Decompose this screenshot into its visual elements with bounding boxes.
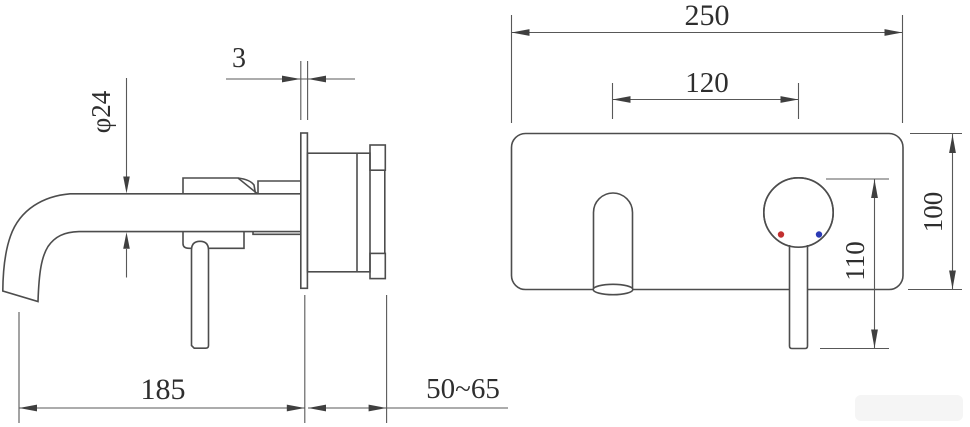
dim-label-handle-drop: 110 bbox=[840, 241, 870, 281]
technical-drawing-canvas: φ24 3 185 50~65 bbox=[0, 0, 970, 427]
dimension-spout-diameter: φ24 bbox=[86, 78, 130, 278]
wall-plate-side bbox=[301, 133, 308, 288]
arrowhead-left-icon bbox=[308, 76, 326, 83]
spout-outlet-ellipse bbox=[593, 284, 633, 294]
mounting-tab-top bbox=[370, 145, 385, 170]
dim-label-panel-thickness: 3 bbox=[232, 43, 246, 74]
dim-label-panel-width: 250 bbox=[685, 0, 730, 32]
handle-lever-front bbox=[790, 245, 808, 349]
dimension-spout-reach: 185 bbox=[19, 295, 305, 423]
arrowhead-up-icon bbox=[949, 135, 956, 154]
mounting-tab-bottom bbox=[370, 253, 385, 278]
dimension-panel-height: 100 bbox=[908, 134, 962, 290]
arrowhead-up-icon bbox=[123, 232, 130, 249]
dimension-spout-to-handle: 120 bbox=[613, 67, 799, 119]
dimension-panel-width: 250 bbox=[512, 0, 903, 123]
arrowhead-down-icon bbox=[949, 271, 956, 290]
cold-indicator-dot bbox=[816, 231, 822, 237]
arrowhead-left-icon bbox=[308, 405, 326, 412]
front-view bbox=[512, 134, 904, 349]
dim-label-panel-height: 100 bbox=[918, 192, 948, 233]
arrowhead-right-icon bbox=[287, 405, 305, 412]
side-view bbox=[3, 133, 386, 348]
arrowhead-left-icon bbox=[613, 96, 631, 103]
handle-lever-side bbox=[192, 241, 209, 348]
arrowhead-right-icon bbox=[282, 76, 301, 83]
dimension-concealed-depth: 50~65 bbox=[308, 295, 508, 423]
arrowhead-right-icon bbox=[369, 405, 387, 412]
hot-indicator-dot bbox=[778, 231, 784, 237]
arrowhead-left-icon bbox=[512, 29, 530, 36]
watermark-smudge bbox=[855, 395, 963, 421]
dim-label-spout-diameter: φ24 bbox=[86, 90, 116, 133]
dim-label-spout-to-handle: 120 bbox=[685, 67, 729, 99]
dim-label-concealed-depth: 50~65 bbox=[426, 373, 500, 405]
spout-side-outline bbox=[3, 194, 301, 302]
arrowhead-down-icon bbox=[123, 177, 130, 194]
dimension-panel-thickness: 3 bbox=[226, 43, 355, 120]
dim-label-spout-reach: 185 bbox=[141, 373, 186, 406]
arrowhead-right-icon bbox=[885, 29, 903, 36]
concealed-body bbox=[307, 153, 370, 272]
arrowhead-left-icon bbox=[19, 405, 37, 412]
arrowhead-right-icon bbox=[781, 96, 799, 103]
arrowhead-down-icon bbox=[871, 330, 878, 349]
faucet-drawing: φ24 3 185 50~65 bbox=[0, 0, 970, 427]
spout-front bbox=[594, 193, 633, 290]
upper-sleeve-line bbox=[258, 181, 301, 194]
